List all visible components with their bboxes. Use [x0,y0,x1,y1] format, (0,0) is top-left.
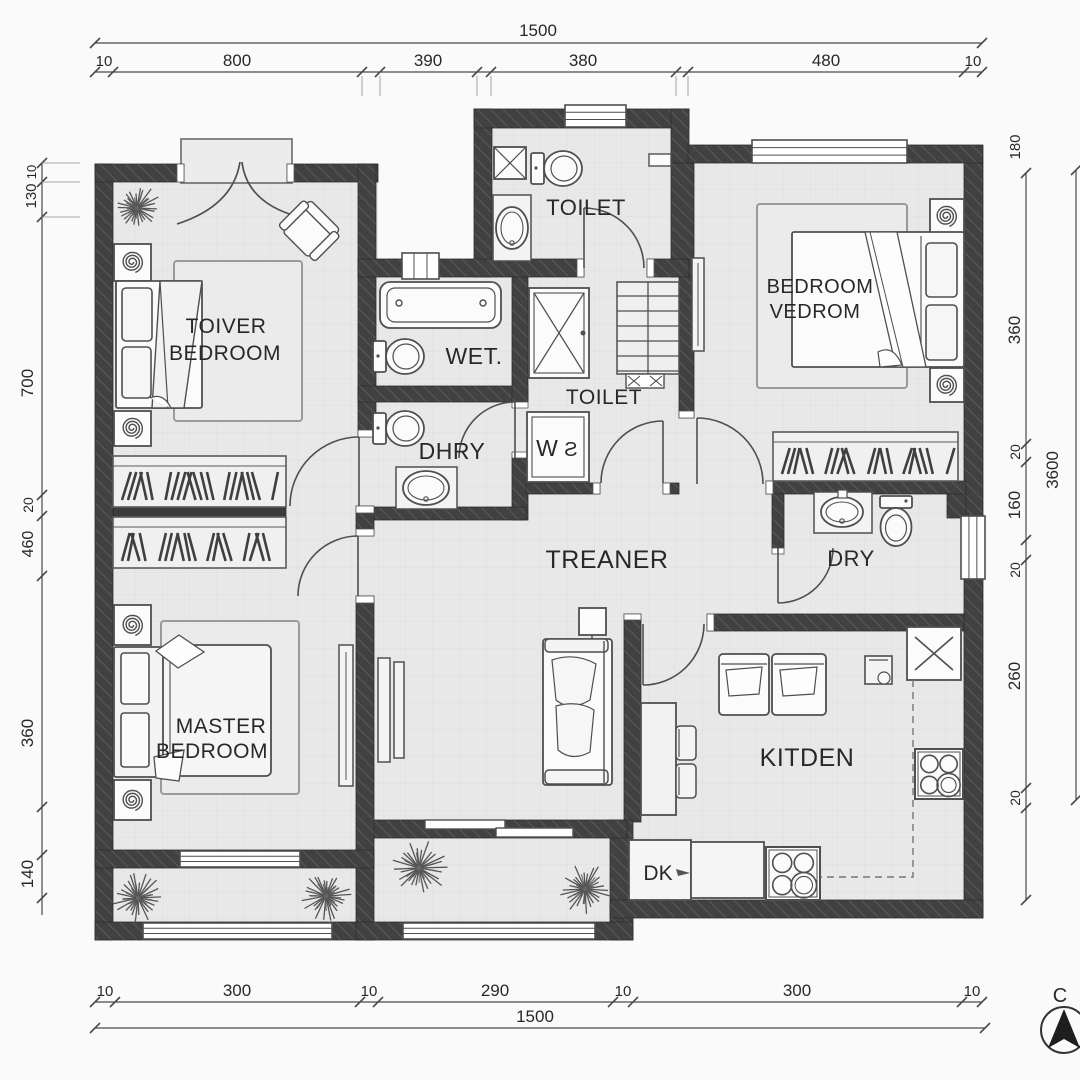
svg-text:10: 10 [24,165,39,179]
svg-text:460: 460 [20,531,37,558]
svg-text:BEDROOM: BEDROOM [156,740,268,763]
svg-text:10: 10 [965,53,982,70]
svg-text:3600: 3600 [1043,451,1062,489]
svg-text:KITDEN: KITDEN [760,744,855,772]
svg-text:1500: 1500 [516,1007,554,1026]
svg-text:VEDROM: VEDROM [770,301,861,323]
svg-text:160: 160 [1005,491,1024,519]
svg-text:390: 390 [414,51,442,70]
svg-text:10: 10 [97,983,114,1000]
svg-text:260: 260 [1005,662,1024,690]
svg-text:180: 180 [1007,134,1024,159]
svg-text:DHRY: DHRY [419,438,486,464]
svg-text:DK: DK [643,862,672,885]
svg-text:20: 20 [1007,444,1023,460]
svg-text:800: 800 [223,51,251,70]
svg-text:360: 360 [1005,316,1024,344]
svg-text:10: 10 [964,983,981,1000]
svg-text:C: C [1053,985,1067,1007]
svg-text:TREANER: TREANER [546,546,669,574]
svg-text:700: 700 [18,369,37,397]
svg-text:BEDROOM: BEDROOM [169,342,281,365]
svg-text:W: W [536,435,558,461]
svg-text:300: 300 [223,981,251,1000]
svg-text:1500: 1500 [519,21,557,40]
svg-text:20: 20 [20,497,36,513]
svg-text:290: 290 [481,981,509,1000]
svg-text:TOIVER: TOIVER [186,315,267,338]
svg-text:10: 10 [361,983,378,1000]
svg-text:S: S [564,439,577,461]
svg-text:MASTER: MASTER [176,715,267,738]
svg-text:WET.: WET. [446,343,503,369]
svg-text:480: 480 [812,51,840,70]
svg-text:360: 360 [18,719,37,747]
svg-text:TOILET: TOILET [546,195,626,220]
svg-text:380: 380 [569,51,597,70]
svg-text:BEDROOM: BEDROOM [767,276,874,298]
svg-text:140: 140 [18,860,37,888]
svg-text:TOILET: TOILET [566,386,642,409]
svg-text:DRY: DRY [827,546,875,571]
svg-text:10: 10 [96,53,113,70]
svg-text:20: 20 [1007,562,1023,578]
svg-text:10: 10 [615,983,632,1000]
svg-text:130: 130 [23,183,40,208]
svg-text:20: 20 [1007,790,1023,806]
svg-text:300: 300 [783,981,811,1000]
